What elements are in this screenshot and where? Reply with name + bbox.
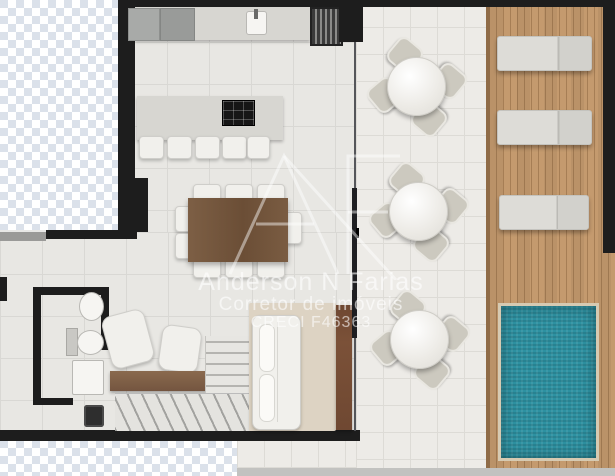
glass-door (352, 188, 357, 338)
deck-frame-line (486, 0, 490, 476)
lounge-chair-1 (497, 36, 592, 71)
kitchen-island (137, 96, 283, 140)
entry-door (0, 277, 7, 301)
transparency-checker-top-left (0, 0, 125, 232)
wall-bottom (0, 430, 360, 441)
bar-stool-4 (222, 136, 247, 159)
staircase-lower-flight (115, 393, 252, 431)
door-handle (356, 228, 359, 238)
staircase-upper-flight (205, 336, 254, 396)
transparency-checker-bottom-left (0, 440, 237, 476)
kitchen-cabinet-2 (160, 8, 195, 41)
bath-cabinet (72, 360, 104, 395)
bottom-edge-strip (237, 468, 615, 476)
outdoor-table-set-2 (372, 165, 464, 257)
sofa-cushion-2 (259, 374, 275, 422)
lounge-chair-3 (499, 195, 589, 230)
bar-stool-3 (195, 136, 220, 159)
outdoor-table (387, 57, 446, 116)
lounge-chair-2 (497, 110, 592, 145)
wall-top (118, 0, 615, 7)
kitchen-cabinet-1 (128, 8, 160, 41)
window-left (0, 230, 46, 241)
bar-stool-2 (167, 136, 192, 159)
bathroom-sink (79, 292, 104, 321)
wall-mid-left (45, 230, 137, 239)
kitchen-sink (246, 11, 267, 35)
doormat (84, 405, 104, 427)
sofa-seam (277, 322, 278, 422)
outdoor-table-set-3 (373, 293, 465, 385)
bar-stool-5 (247, 136, 270, 159)
grill-cabinet (339, 4, 363, 42)
outdoor-table (390, 310, 449, 369)
faucet-icon (254, 9, 258, 19)
tv-panel-column (120, 178, 148, 232)
bath-wall-bottom (33, 398, 73, 405)
pool (498, 303, 599, 461)
bath-wall-left (33, 287, 41, 405)
floor-plan-rendering: Anderson N Farias Corretor de imóveis CR… (0, 0, 615, 476)
sofa (252, 315, 301, 430)
cooktop (222, 100, 255, 126)
bar-stool-1 (139, 136, 164, 159)
office-chair-2 (157, 323, 203, 374)
outdoor-table-set-1 (370, 40, 462, 132)
outdoor-table (389, 182, 448, 241)
wall-right (603, 0, 615, 253)
sofa-cushion-1 (259, 324, 275, 372)
toilet (77, 330, 104, 355)
dining-table (188, 198, 288, 262)
desk (110, 371, 207, 391)
sideboard (336, 305, 352, 430)
